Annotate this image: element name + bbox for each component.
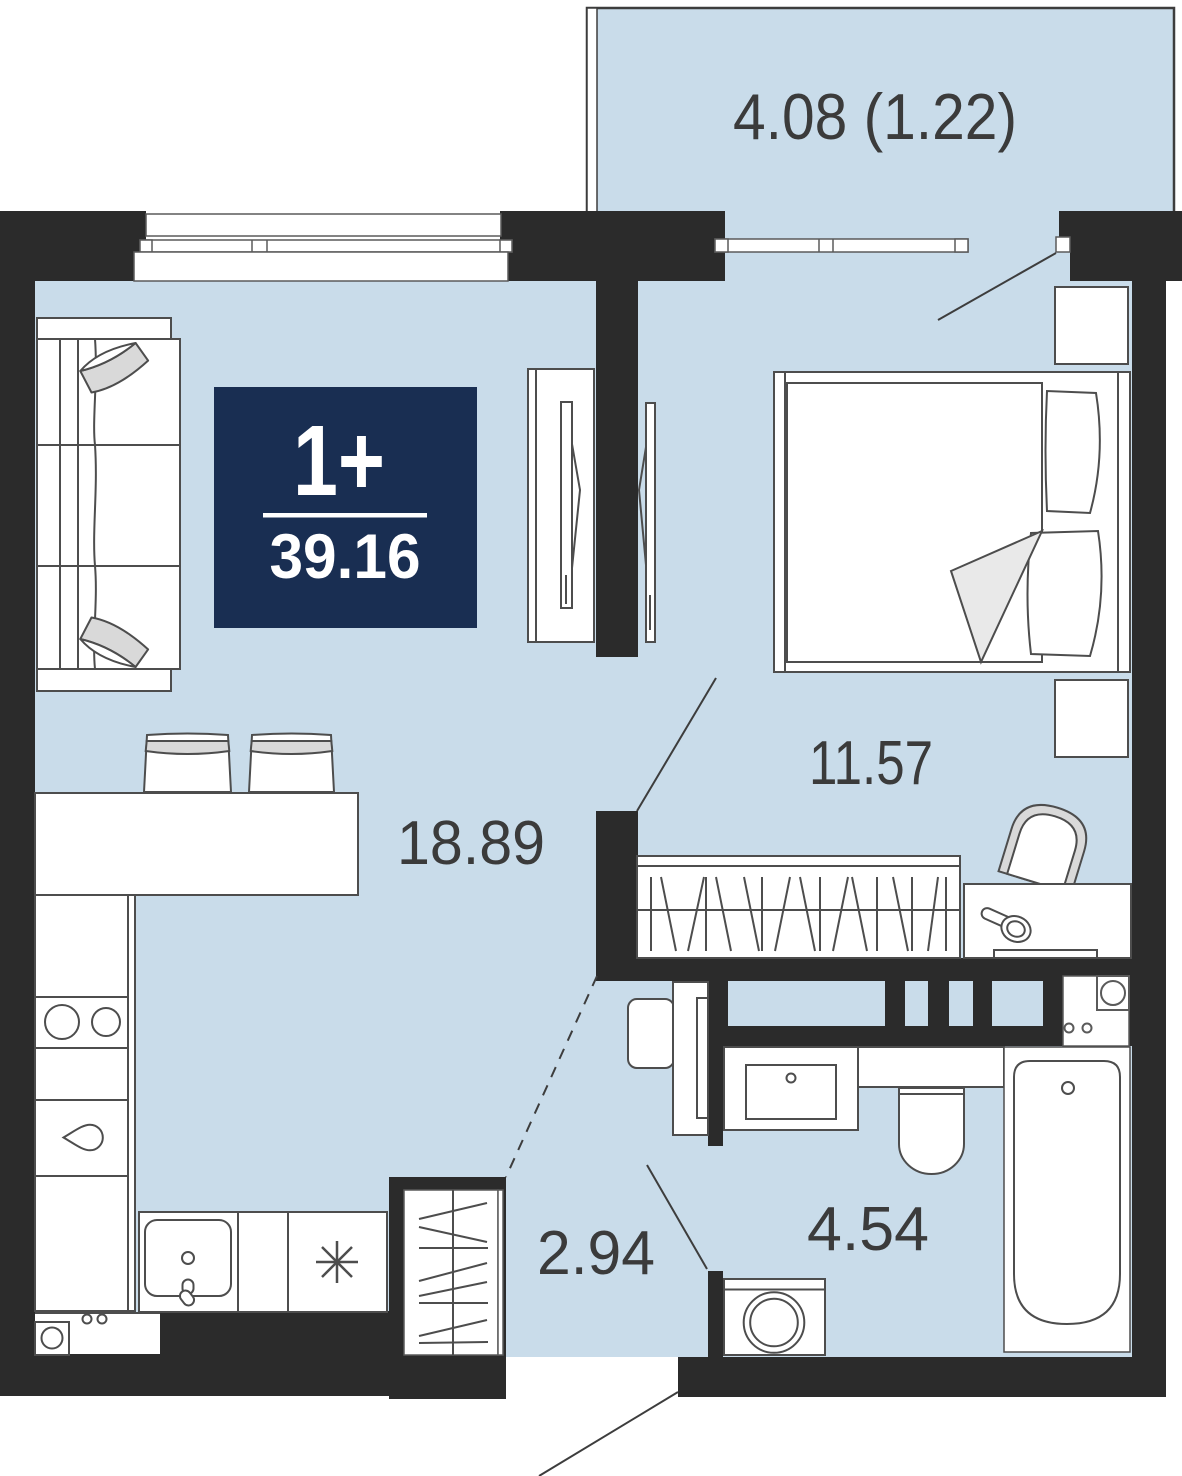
svg-text:1+: 1+ bbox=[293, 405, 385, 517]
svg-text:4.08 (1.22): 4.08 (1.22) bbox=[733, 80, 1017, 153]
svg-text:11.57: 11.57 bbox=[809, 729, 933, 798]
svg-text:4.54: 4.54 bbox=[807, 1195, 929, 1264]
svg-text:39.16: 39.16 bbox=[270, 522, 421, 592]
svg-text:18.89: 18.89 bbox=[397, 809, 545, 878]
svg-text:2.94: 2.94 bbox=[537, 1219, 655, 1288]
